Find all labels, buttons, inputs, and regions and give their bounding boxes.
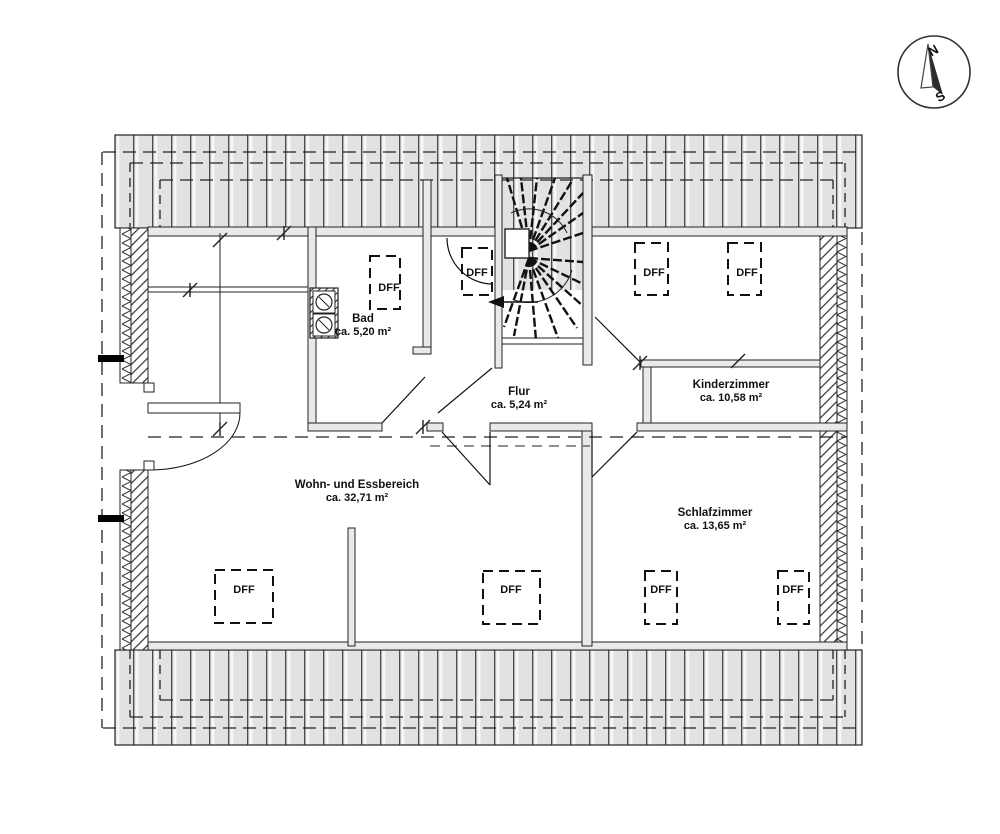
room-label-wohn-essbereich: Wohn- und Essbereich [295, 479, 419, 491]
room-label-kinderzimmer: Kinderzimmer [693, 379, 770, 391]
skylight-label: DFF [500, 584, 522, 596]
skylight-label: DFF [782, 584, 804, 596]
bath-shaft-block [310, 288, 338, 338]
section-marker-upper [98, 355, 124, 362]
section-marker-lower [98, 515, 124, 522]
skylight-label: DFF [736, 267, 758, 279]
room-label-schlafzimmer: Schlafzimmer [678, 507, 753, 519]
skylight-label: DFF [466, 267, 488, 279]
room-area-schlafzimmer: ca. 13,65 m² [684, 520, 747, 532]
room-area-flur: ca. 5,24 m² [491, 399, 548, 411]
floor-plan-drawing: DFF DFF DFF DFF DFF DFF DFF DFF Bad ca. … [0, 0, 1000, 834]
room-label-bad: Bad [352, 313, 374, 325]
room-area-bad: ca. 5,20 m² [335, 326, 392, 338]
skylight-label: DFF [378, 282, 400, 294]
floor-plan-canvas: DFF DFF DFF DFF DFF DFF DFF DFF Bad ca. … [0, 0, 1000, 834]
room-area-wohn-essbereich: ca. 32,71 m² [326, 492, 389, 504]
skylight-label: DFF [650, 584, 672, 596]
room-label-flur: Flur [508, 386, 530, 398]
skylight-label: DFF [233, 584, 255, 596]
room-area-kinderzimmer: ca. 10,58 m² [700, 392, 763, 404]
skylight-label: DFF [643, 267, 665, 279]
stair-core [505, 229, 529, 258]
